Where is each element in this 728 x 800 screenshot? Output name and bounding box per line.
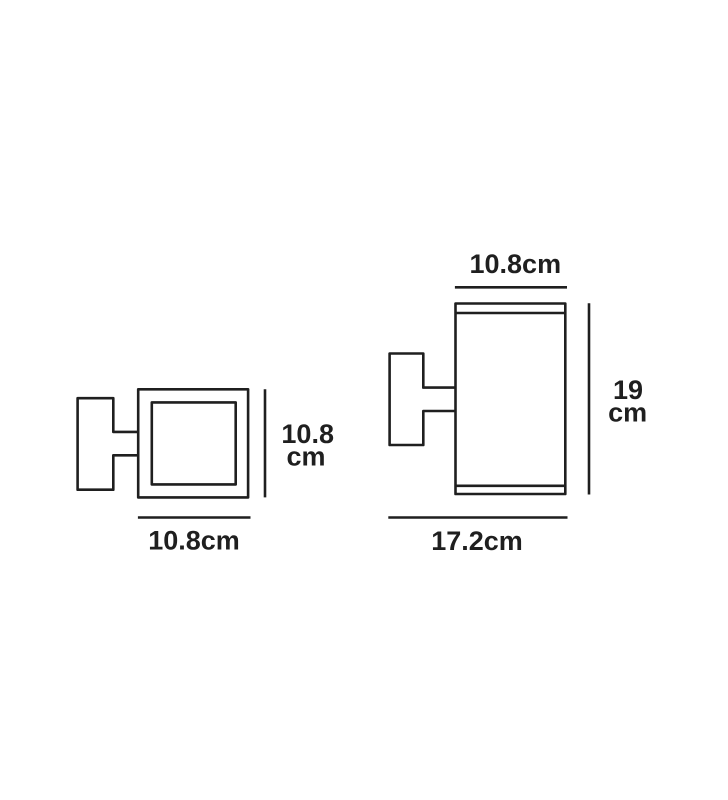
- svg-text:10.8cm: 10.8cm: [470, 249, 562, 279]
- svg-text:10.8cm: 10.8cm: [148, 526, 240, 556]
- svg-text:17.2cm: 17.2cm: [431, 526, 523, 556]
- svg-text:cm: cm: [608, 397, 647, 427]
- svg-text:cm: cm: [286, 442, 325, 472]
